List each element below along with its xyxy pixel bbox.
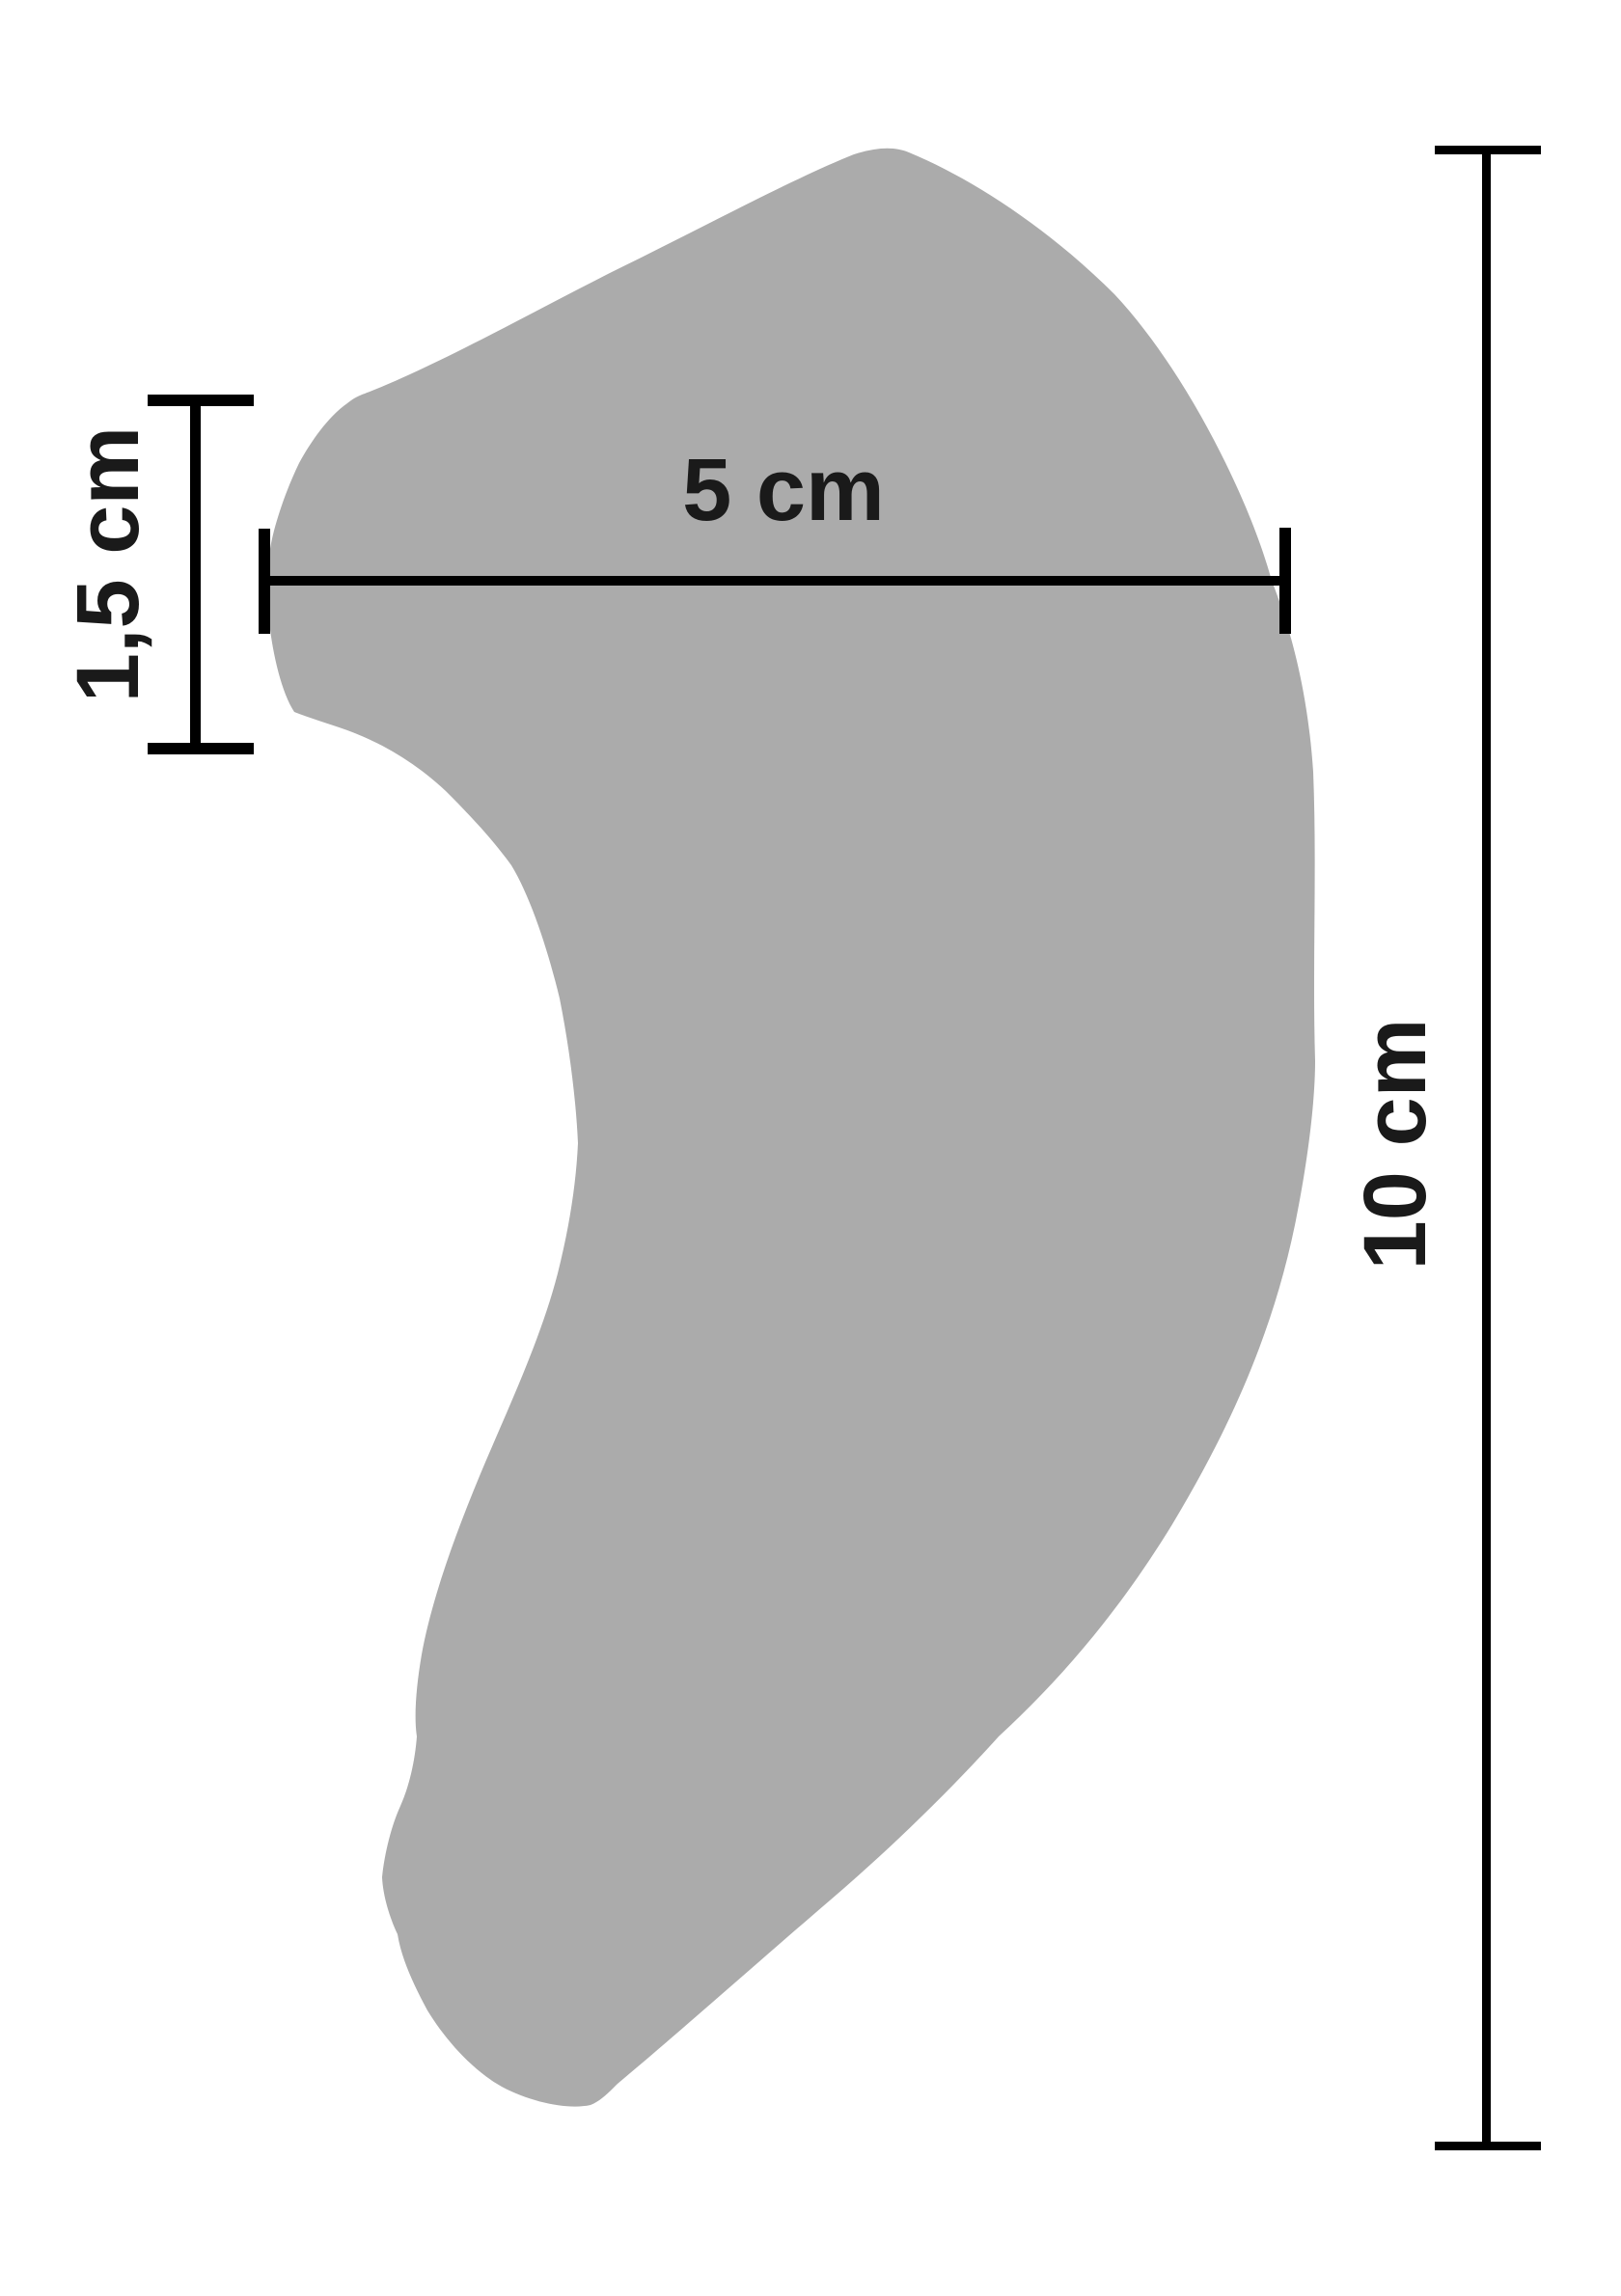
thickness-dimension-line (148, 395, 254, 754)
thickness-dimension-bar (190, 400, 201, 749)
width-dimension-bar (264, 576, 1285, 586)
height-dimension-bar (1482, 150, 1491, 2146)
height-dimension-bottom-cap (1435, 2142, 1541, 2150)
thickness-dimension-label: 1,5 cm (64, 426, 152, 702)
measurement-diagram: 5 cm 1,5 cm 10 cm (0, 0, 1621, 2296)
thickness-dimension-bottom-cap (148, 743, 254, 754)
width-dimension-right-tick (1279, 528, 1291, 634)
height-dimension-line (1435, 146, 1541, 2150)
width-dimension-label: 5 cm (682, 446, 885, 534)
height-dimension-label: 10 cm (1351, 1019, 1440, 1271)
